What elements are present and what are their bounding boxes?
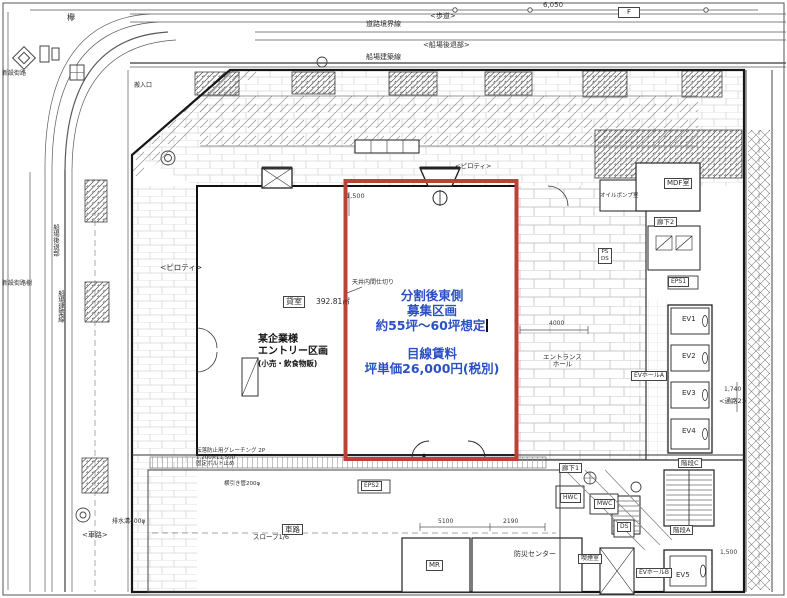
dim-1500: 1,500	[346, 193, 365, 200]
ev5-label: EV5	[676, 571, 690, 579]
dim-4000: 4000	[549, 321, 564, 328]
semba-setback-label: <船場後退部>	[423, 41, 470, 49]
text-cursor	[486, 319, 488, 332]
hwc-label: HWC	[560, 493, 581, 503]
ev-hall-a-label: EVホールA	[631, 371, 667, 381]
tenant-line2: エントリー区画	[258, 346, 328, 358]
mr-label: MR	[426, 560, 443, 571]
kashitsu-label: 貸室	[283, 296, 305, 308]
f-mark-box: F	[618, 7, 640, 18]
tenant-line3: (小売・飲食物販)	[258, 358, 328, 369]
ev4-label: EV4	[682, 427, 696, 435]
stair-a-label: 階段A	[670, 525, 693, 535]
promo-line5: 坪単価26,000円(税別)	[347, 361, 517, 376]
passage2-label: <通路2>	[719, 398, 747, 405]
kashitsu-area-label: 392.81㎡	[316, 298, 350, 307]
tenant-entry-annotation: 某企業様 エントリー区画 (小売・飲食物販)	[258, 334, 328, 369]
ev3-label: EV3	[682, 389, 696, 397]
corridor1-label: 廊下1	[559, 463, 582, 473]
yokobiki-note: 横引き管200φ	[224, 481, 260, 487]
piloti-label-2: <ピロティ>	[455, 163, 492, 170]
semba-line-vertical-label: 船場建築線	[56, 290, 63, 323]
drive-lane-left-label: <車路>	[82, 531, 108, 539]
new-street-tree-label: 新設街路樹	[2, 281, 32, 288]
promo-line4: 目線賃料	[347, 346, 517, 361]
drain-label: 排水溝400φ	[112, 519, 145, 526]
mwc-label: MWC	[594, 499, 615, 509]
dim-6050: 6,050	[543, 1, 563, 9]
new-street-label: 新設街路	[2, 71, 26, 78]
oil-pump-room-label: オイルポンプ室	[600, 193, 638, 199]
dim-1740: 1,740	[724, 387, 741, 394]
piloti-label: <ピロティ>	[160, 264, 202, 273]
dim-5100: 5100	[438, 519, 453, 526]
keyaki-tree-label: 欅	[67, 13, 75, 22]
tenant-line1: 某企業様	[258, 334, 328, 346]
ceiling-partition-note: 天井内間仕切り	[352, 280, 394, 287]
promo-line1: 分割後東側	[347, 288, 517, 303]
corridor2-label: 廊下2	[654, 217, 677, 227]
ev-hall-b-label: EVホールB	[636, 568, 672, 578]
ps-ds-label: PS DS	[598, 248, 612, 264]
grating-note: 転落防止用グレーチング 2P 1,200×L1,500 固定ボルト止め	[196, 448, 265, 468]
loading-entrance-label: 搬入口	[134, 83, 152, 90]
ev1-label: EV1	[682, 315, 696, 323]
leasing-promo-text[interactable]: 分割後東側 募集区画 約55坪～60坪想定 目線賃料 坪単価26,000円(税別…	[347, 288, 517, 376]
mdf-room-label: MDF室	[664, 178, 692, 189]
promo-line2: 募集区画	[347, 303, 517, 318]
smoking-room-label: 喫煙室	[578, 554, 602, 564]
entrance-hall-label: エントランス ホール	[543, 354, 582, 369]
promo-line3: 約55坪～60坪想定	[347, 318, 517, 333]
ev2-label: EV2	[682, 352, 696, 360]
road-boundary-label: 道路境界線	[366, 20, 401, 28]
disaster-center-label: 防災センター	[514, 550, 556, 558]
sidewalk-label: <歩道>	[430, 12, 456, 20]
eps1-label: EPS1	[668, 277, 689, 287]
floor-plan-sheet: 欅 道路境界線 <歩道> <船場後退部> 船場建築線 6,050 F 新設街路 …	[0, 0, 787, 598]
stair-c-label: 階段C	[678, 458, 702, 468]
ds-label: DS	[617, 522, 631, 532]
semba-building-line-label: 船場建築線	[366, 53, 401, 61]
slope-label: スロープ1/6	[253, 534, 289, 541]
dim-2190: 2190	[503, 519, 518, 526]
semba-setback-vertical-label: 船場後退部	[51, 224, 58, 257]
eps2-label: EPS2	[361, 481, 382, 491]
dim-1500-b: 1,500	[720, 550, 737, 557]
